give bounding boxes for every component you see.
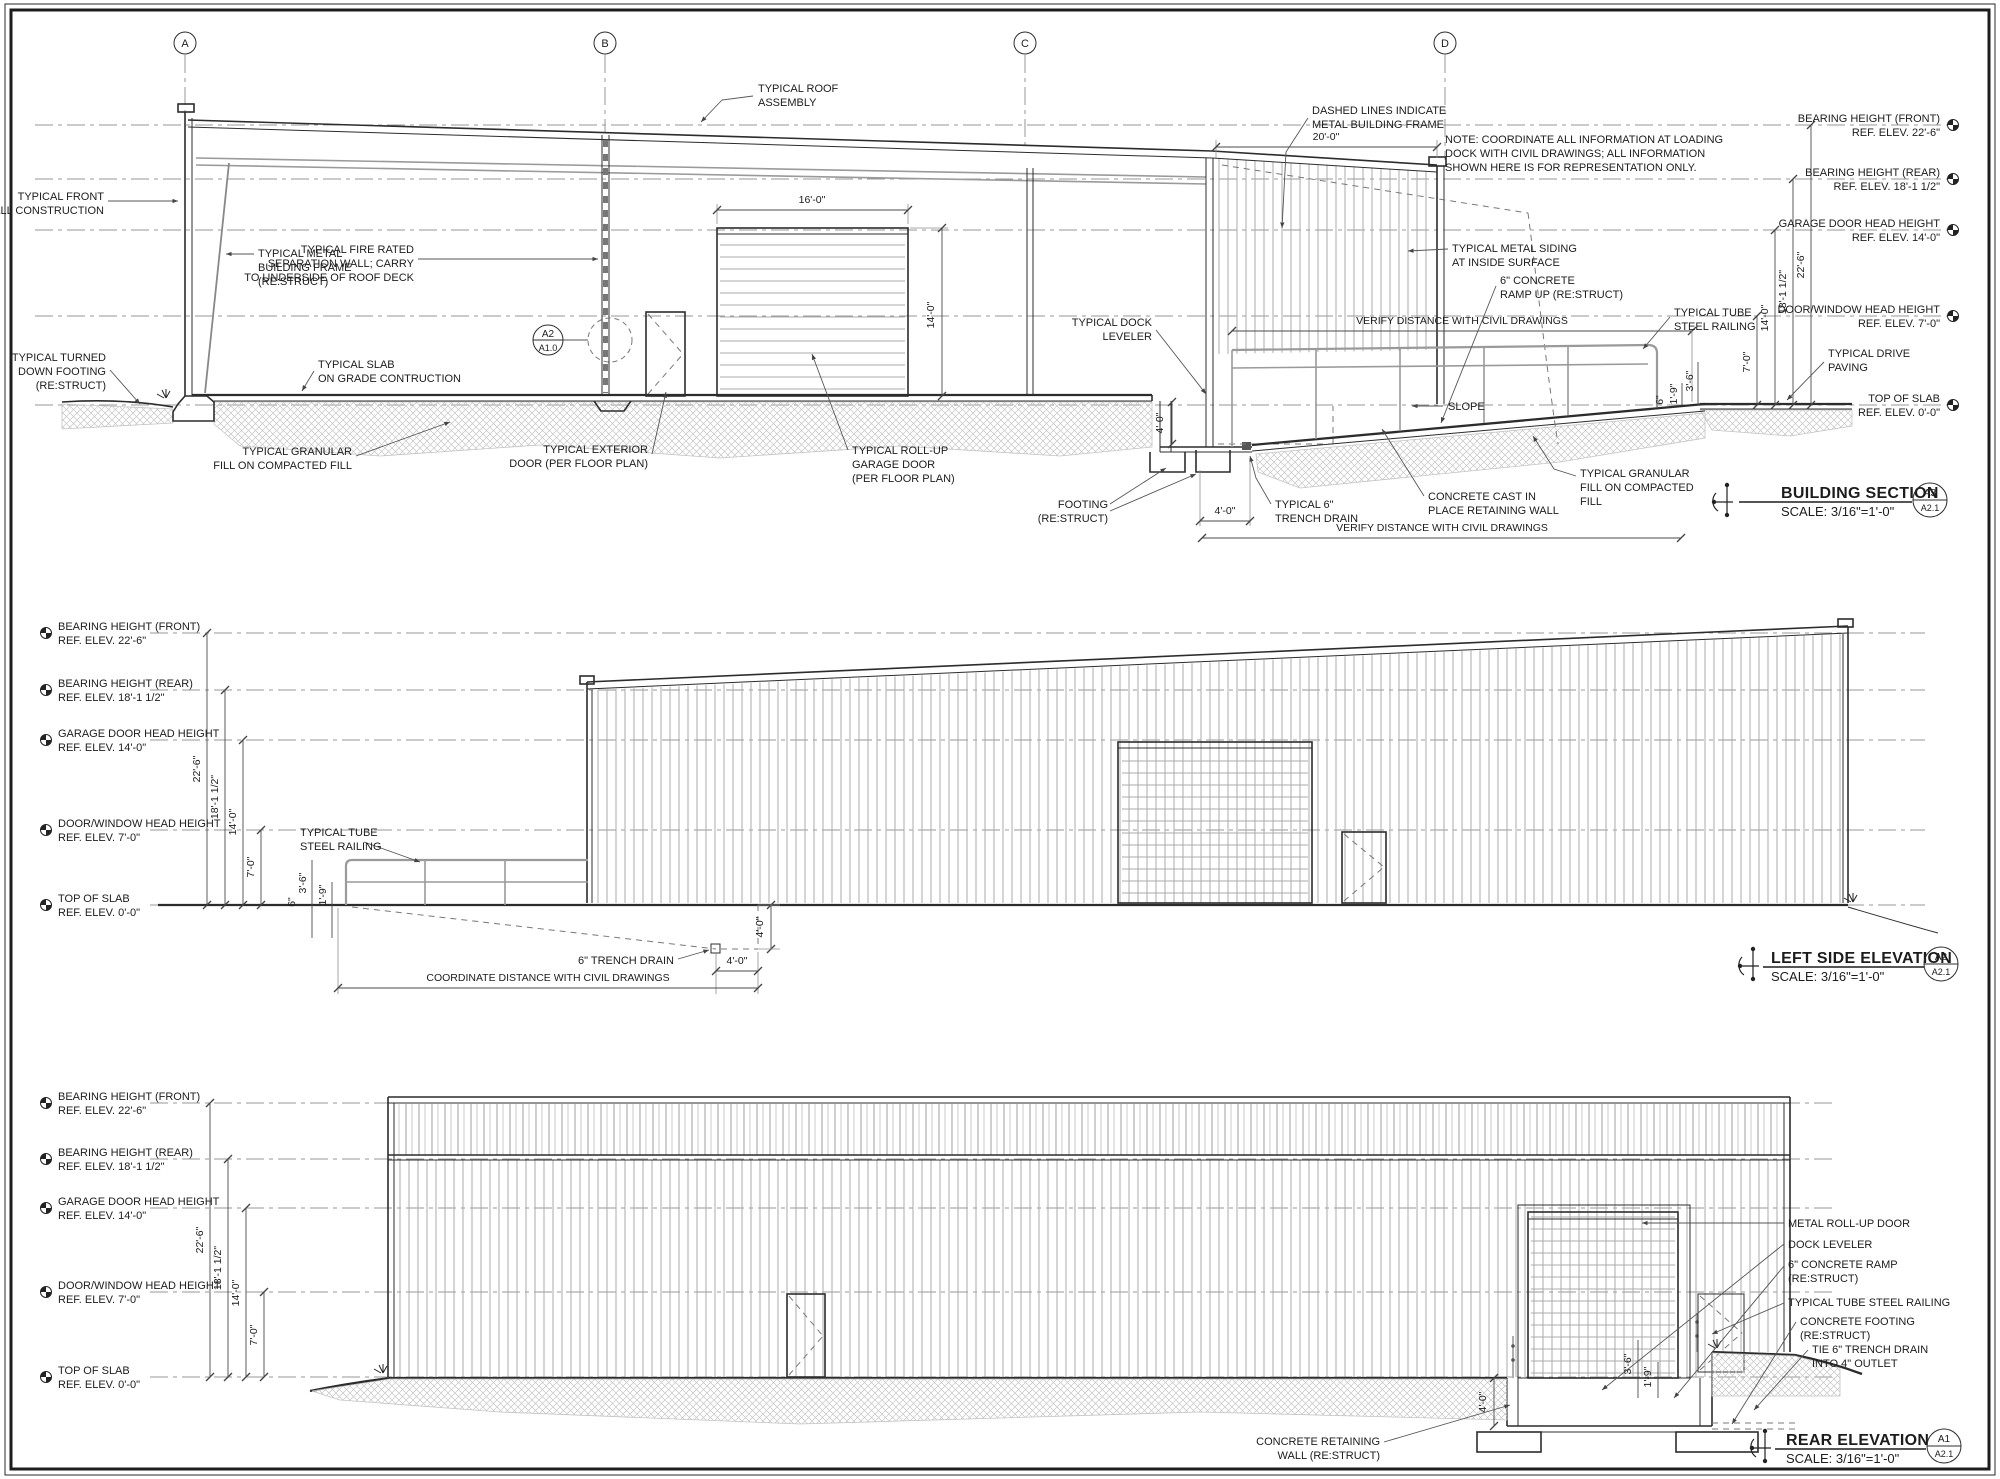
callout-railing-left: TYPICAL TUBE (300, 827, 378, 839)
svg-text:REF. ELEV. 14'-0": REF. ELEV. 14'-0" (58, 1210, 146, 1222)
svg-text:REF. ELEV. 18'-1 1/2": REF. ELEV. 18'-1 1/2" (58, 1161, 165, 1173)
rear-sheet-no: A2.1 (1935, 1449, 1954, 1459)
callout-roof: TYPICAL ROOF (758, 83, 839, 95)
svg-text:(RE:STRUCT): (RE:STRUCT) (1038, 513, 1108, 525)
dim-22-6-right: 22'-6" (1795, 251, 1807, 278)
callout-rear-ramp: 6" CONCRETE RAMP (1788, 1259, 1898, 1271)
svg-text:REF. ELEV. 18'-1 1/2": REF. ELEV. 18'-1 1/2" (58, 692, 165, 704)
grid-lines: A B C D (174, 32, 1456, 160)
svg-text:DOOR (PER FLOOR PLAN): DOOR (PER FLOOR PLAN) (509, 458, 648, 470)
verify-distance-bottom: VERIFY DISTANCE WITH CIVIL DRAWINGS (1336, 522, 1548, 534)
svg-text:SHOWN HERE IS FOR REPRESENTATI: SHOWN HERE IS FOR REPRESENTATION ONLY. (1445, 162, 1697, 174)
drawing-sheet: A B C D (0, 0, 2000, 1479)
dim-14-0-rear: 14'-0" (230, 1279, 242, 1306)
callout-slope: SLOPE (1448, 401, 1485, 413)
grid-bubble-d: D (1441, 38, 1449, 50)
trench-drain (1242, 442, 1251, 450)
turned-down-footing (173, 396, 214, 421)
callout-fire-wall: TYPICAL FIRE RATED (301, 244, 414, 256)
dim-22-6-rear: 22'-6" (194, 1226, 206, 1253)
callout-granular-right: TYPICAL GRANULAR (1580, 468, 1690, 480)
dim-4-0-drain: 4'-0" (1215, 505, 1236, 517)
label-door-window-head: DOOR/WINDOW HEAD HEIGHT (1777, 304, 1940, 316)
label-door-window-rear: DOOR/WINDOW HEAD HEIGHT (58, 1280, 221, 1292)
svg-text:PAVING: PAVING (1828, 362, 1868, 374)
callout-dashed-frame: DASHED LINES INDICATE (1312, 105, 1446, 117)
rear-title: REAR ELEVATION SCALE: 3/16"=1'-0" A1 A2.… (1750, 1429, 1961, 1466)
callout-rear-footing: CONCRETE FOOTING (1800, 1316, 1915, 1328)
callout-dock-leveler: TYPICAL DOCK (1072, 317, 1153, 329)
svg-text:REF. ELEV. 18'-1 1/2": REF. ELEV. 18'-1 1/2" (1834, 181, 1941, 193)
section-title-text: BUILDING SECTION (1781, 485, 1939, 502)
building-section-view: A B C D (0, 32, 1959, 542)
left-elev-railing (346, 860, 588, 905)
svg-text:LEVELER: LEVELER (1102, 331, 1152, 343)
note-text: NOTE: COORDINATE ALL INFORMATION AT LOAD… (1445, 134, 1723, 146)
svg-text:FILL ON COMPACTED: FILL ON COMPACTED (1580, 482, 1694, 494)
svg-text:REF. ELEV. 14'-0": REF. ELEV. 14'-0" (1852, 232, 1940, 244)
svg-text:STEEL RAILING: STEEL RAILING (1674, 321, 1756, 333)
callout-rear-rollup: METAL ROLL-UP DOOR (1788, 1218, 1910, 1230)
dim-1-9-right: 1'-9" (1668, 383, 1680, 404)
svg-text:REF. ELEV. 14'-0": REF. ELEV. 14'-0" (58, 742, 146, 754)
dim-1-9-rail: 1'-9" (317, 884, 329, 905)
dim-3-6-rear: 3'-6" (1622, 1353, 1634, 1374)
svg-text:GARAGE DOOR: GARAGE DOOR (852, 459, 935, 471)
callout-front-wall: TYPICAL FRONT (18, 191, 105, 203)
detail-bubble-bottom: A1.0 (539, 343, 558, 353)
rear-detail-no: A1 (1938, 1434, 1951, 1445)
svg-text:(PER FLOOR PLAN): (PER FLOOR PLAN) (852, 473, 955, 485)
footing-right (1676, 1432, 1758, 1452)
rear-elevation-view: 22'-6" 18'-1 1/2" 14'-0" 7'-0" 4'-0" 3'-… (41, 1091, 1962, 1466)
label-bearing-rear: BEARING HEIGHT (REAR) (1805, 167, 1940, 179)
svg-text:SEPARATION WALL; CARRY: SEPARATION WALL; CARRY (268, 258, 415, 270)
callout-trench: TYPICAL 6" (1275, 499, 1334, 511)
verify-distance-mid: VERIFY DISTANCE WITH CIVIL DRAWINGS (1356, 315, 1568, 327)
label-bearing-front: BEARING HEIGHT (FRONT) (1798, 113, 1940, 125)
svg-text:STEEL RAILING: STEEL RAILING (300, 841, 382, 853)
section-title-scale: SCALE: 3/16"=1'-0" (1781, 504, 1895, 519)
svg-text:(RE:STRUCT): (RE:STRUCT) (1800, 1330, 1870, 1342)
label-garage-rear: GARAGE DOOR HEAD HEIGHT (58, 1196, 220, 1208)
label-bearing-front-rear: BEARING HEIGHT (FRONT) (58, 1091, 200, 1103)
svg-text:REF. ELEV. 22'-6": REF. ELEV. 22'-6" (58, 1105, 146, 1117)
callout-drive-paving: TYPICAL DRIVE (1828, 348, 1910, 360)
coordinate-distance: COORDINATE DISTANCE WITH CIVIL DRAWINGS (426, 972, 669, 984)
svg-text:RAMP UP (RE:STRUCT): RAMP UP (RE:STRUCT) (1500, 289, 1623, 301)
callout-rear-dock-leveler: DOCK LEVELER (1788, 1239, 1872, 1251)
label-top-of-slab: TOP OF SLAB (1868, 393, 1940, 405)
grid-bubble-b: B (601, 38, 608, 50)
callout-rear-retaining: CONCRETE RETAINING (1256, 1436, 1380, 1448)
svg-text:TO UNDERSIDE OF ROOF DECK: TO UNDERSIDE OF ROOF DECK (244, 272, 414, 284)
svg-text:WALL (RE:STRUCT): WALL (RE:STRUCT) (1278, 1450, 1380, 1462)
svg-text:WALL CONSTRUCTION: WALL CONSTRUCTION (0, 205, 104, 217)
dim-4-0-depth: 4'-0" (754, 916, 766, 937)
svg-text:DOCK WITH CIVIL DRAWINGS; ALL: DOCK WITH CIVIL DRAWINGS; ALL INFORMATIO… (1445, 148, 1705, 160)
dim-6-rail: 6" (286, 897, 298, 907)
svg-text:REF. ELEV. 22'-6": REF. ELEV. 22'-6" (1852, 127, 1940, 139)
trench-outlet-dashed (1712, 1423, 1797, 1429)
rear-title-text: REAR ELEVATION (1786, 1432, 1929, 1449)
rear-building (310, 1097, 1862, 1452)
dim-3-6-right: 3'-6" (1684, 370, 1696, 391)
svg-text:(RE:STRUCT): (RE:STRUCT) (36, 380, 106, 392)
svg-text:REF. ELEV. 22'-6": REF. ELEV. 22'-6" (58, 635, 146, 647)
sheet-svg: A B C D (0, 0, 2000, 1479)
dim-14-0-right: 14'-0" (1759, 304, 1771, 331)
label-bearing-rear-left: BEARING HEIGHT (REAR) (58, 678, 193, 690)
svg-text:TRENCH DRAIN: TRENCH DRAIN (1275, 513, 1358, 525)
dim-14-0-left: 14'-0" (227, 808, 239, 835)
left-elev-detail-no: A2 (1935, 952, 1948, 963)
section-sheet-no: A2.1 (1921, 503, 1940, 513)
callout-siding: TYPICAL METAL SIDING (1452, 243, 1577, 255)
dim-4-0-drain-left: 4'-0" (727, 955, 748, 967)
section-title: BUILDING SECTION SCALE: 3/16"=1'-0" A3 A… (1712, 483, 1947, 519)
dim-4-0-pit: 4'-0" (1154, 412, 1166, 433)
dim-16-0: 16'-0" (799, 194, 826, 206)
footing-left (1477, 1432, 1541, 1452)
svg-text:DOWN FOOTING: DOWN FOOTING (18, 366, 106, 378)
left-elev-title: LEFT SIDE ELEVATION SCALE: 3/16"=1'-0" A… (1738, 947, 1958, 984)
callout-footing: FOOTING (1058, 499, 1108, 511)
label-garage-head: GARAGE DOOR HEAD HEIGHT (1779, 218, 1941, 230)
callout-ramp-up: 6" CONCRETE (1500, 275, 1575, 287)
dim-7-0-right: 7'-0" (1741, 351, 1753, 372)
svg-text:REF. ELEV. 7'-0": REF. ELEV. 7'-0" (58, 832, 140, 844)
dim-18-1-left: 18'-1 1/2" (209, 775, 221, 820)
callout-slab: TYPICAL SLAB (318, 359, 395, 371)
dim-14-0-v: 14'-0" (925, 301, 937, 328)
label-door-window-left: DOOR/WINDOW HEAD HEIGHT (58, 818, 221, 830)
svg-text:PLACE RETAINING WALL: PLACE RETAINING WALL (1428, 505, 1559, 517)
callout-granular-left: TYPICAL GRANULAR (242, 446, 352, 458)
detail-dash-circle (588, 318, 632, 362)
left-elev-garage-door (1118, 742, 1312, 903)
grid-bubble-c: C (1021, 38, 1029, 50)
metal-frame-line (205, 163, 229, 393)
callout-retaining: CONCRETE CAST IN (1428, 491, 1536, 503)
svg-text:REF. ELEV. 0'-0": REF. ELEV. 0'-0" (1858, 407, 1940, 419)
left-elev-building (158, 619, 1938, 953)
dim-6-right: 6" (1654, 395, 1666, 405)
svg-text:ON GRADE CONTRUCTION: ON GRADE CONTRUCTION (318, 373, 461, 385)
rear-title-scale: SCALE: 3/16"=1'-0" (1786, 1451, 1900, 1466)
label-slab-rear: TOP OF SLAB (58, 1365, 130, 1377)
svg-text:FILL: FILL (1580, 496, 1602, 508)
svg-text:REF. ELEV. 0'-0": REF. ELEV. 0'-0" (58, 907, 140, 919)
callout-rear-railing: TYPICAL TUBE STEEL RAILING (1788, 1297, 1950, 1309)
svg-text:FILL ON COMPACTED FILL: FILL ON COMPACTED FILL (213, 460, 352, 472)
callout-ext-door: TYPICAL EXTERIOR (543, 444, 648, 456)
svg-text:REF. ELEV. 0'-0": REF. ELEV. 0'-0" (58, 1379, 140, 1391)
section-exterior-door (646, 312, 685, 396)
detail-bubble-top: A2 (542, 329, 555, 340)
left-elev-sheet-no: A2.1 (1932, 967, 1951, 977)
callout-tie-drain: TIE 6" TRENCH DRAIN (1812, 1344, 1928, 1356)
left-elevation-view: 22'-6" 18'-1 1/2" 14'-0" 7'-0" 3'-6" 1'-… (41, 619, 1959, 994)
section-detail-no: A3 (1924, 488, 1937, 499)
callout-rollup: TYPICAL ROLL-UP (852, 445, 948, 457)
svg-text:(RE:STRUCT): (RE:STRUCT) (1788, 1273, 1858, 1285)
dim-7-0-rear: 7'-0" (248, 1324, 260, 1345)
svg-text:INTO 4" OUTLET: INTO 4" OUTLET (1812, 1358, 1898, 1370)
label-bearing-front-left: BEARING HEIGHT (FRONT) (58, 621, 200, 633)
svg-text:AT INSIDE SURFACE: AT INSIDE SURFACE (1452, 257, 1560, 269)
dim-22-6-left: 22'-6" (191, 755, 203, 782)
svg-text:METAL BUILDING FRAME: METAL BUILDING FRAME (1312, 119, 1444, 131)
grid-bubble-a: A (181, 38, 189, 50)
svg-text:REF. ELEV. 7'-0": REF. ELEV. 7'-0" (1858, 318, 1940, 330)
svg-text:ASSEMBLY: ASSEMBLY (758, 97, 817, 109)
callout-turned-footing: TYPICAL TURNED (12, 352, 106, 364)
section-rollup-door (717, 228, 908, 396)
svg-text:REF. ELEV. 7'-0": REF. ELEV. 7'-0" (58, 1294, 140, 1306)
rear-rollup-door (1531, 1215, 1675, 1375)
label-bearing-rear-rear: BEARING HEIGHT (REAR) (58, 1147, 193, 1159)
left-elev-title-scale: SCALE: 3/16"=1'-0" (1771, 969, 1885, 984)
callout-trench-left: 6" TRENCH DRAIN (578, 955, 674, 967)
dim-7-0-left: 7'-0" (245, 856, 257, 877)
dim-4-0-rear-pit: 4'-0" (1477, 1391, 1489, 1412)
dim-20-0: 20'-0" (1313, 131, 1340, 143)
parapet-band (394, 1104, 1784, 1155)
dim-3-6-rail: 3'-6" (297, 872, 309, 893)
callout-railing: TYPICAL TUBE (1674, 307, 1752, 319)
label-garage-left: GARAGE DOOR HEAD HEIGHT (58, 728, 220, 740)
label-slab-left: TOP OF SLAB (58, 893, 130, 905)
dim-1-9-rear: 1'-9" (1642, 1366, 1654, 1387)
